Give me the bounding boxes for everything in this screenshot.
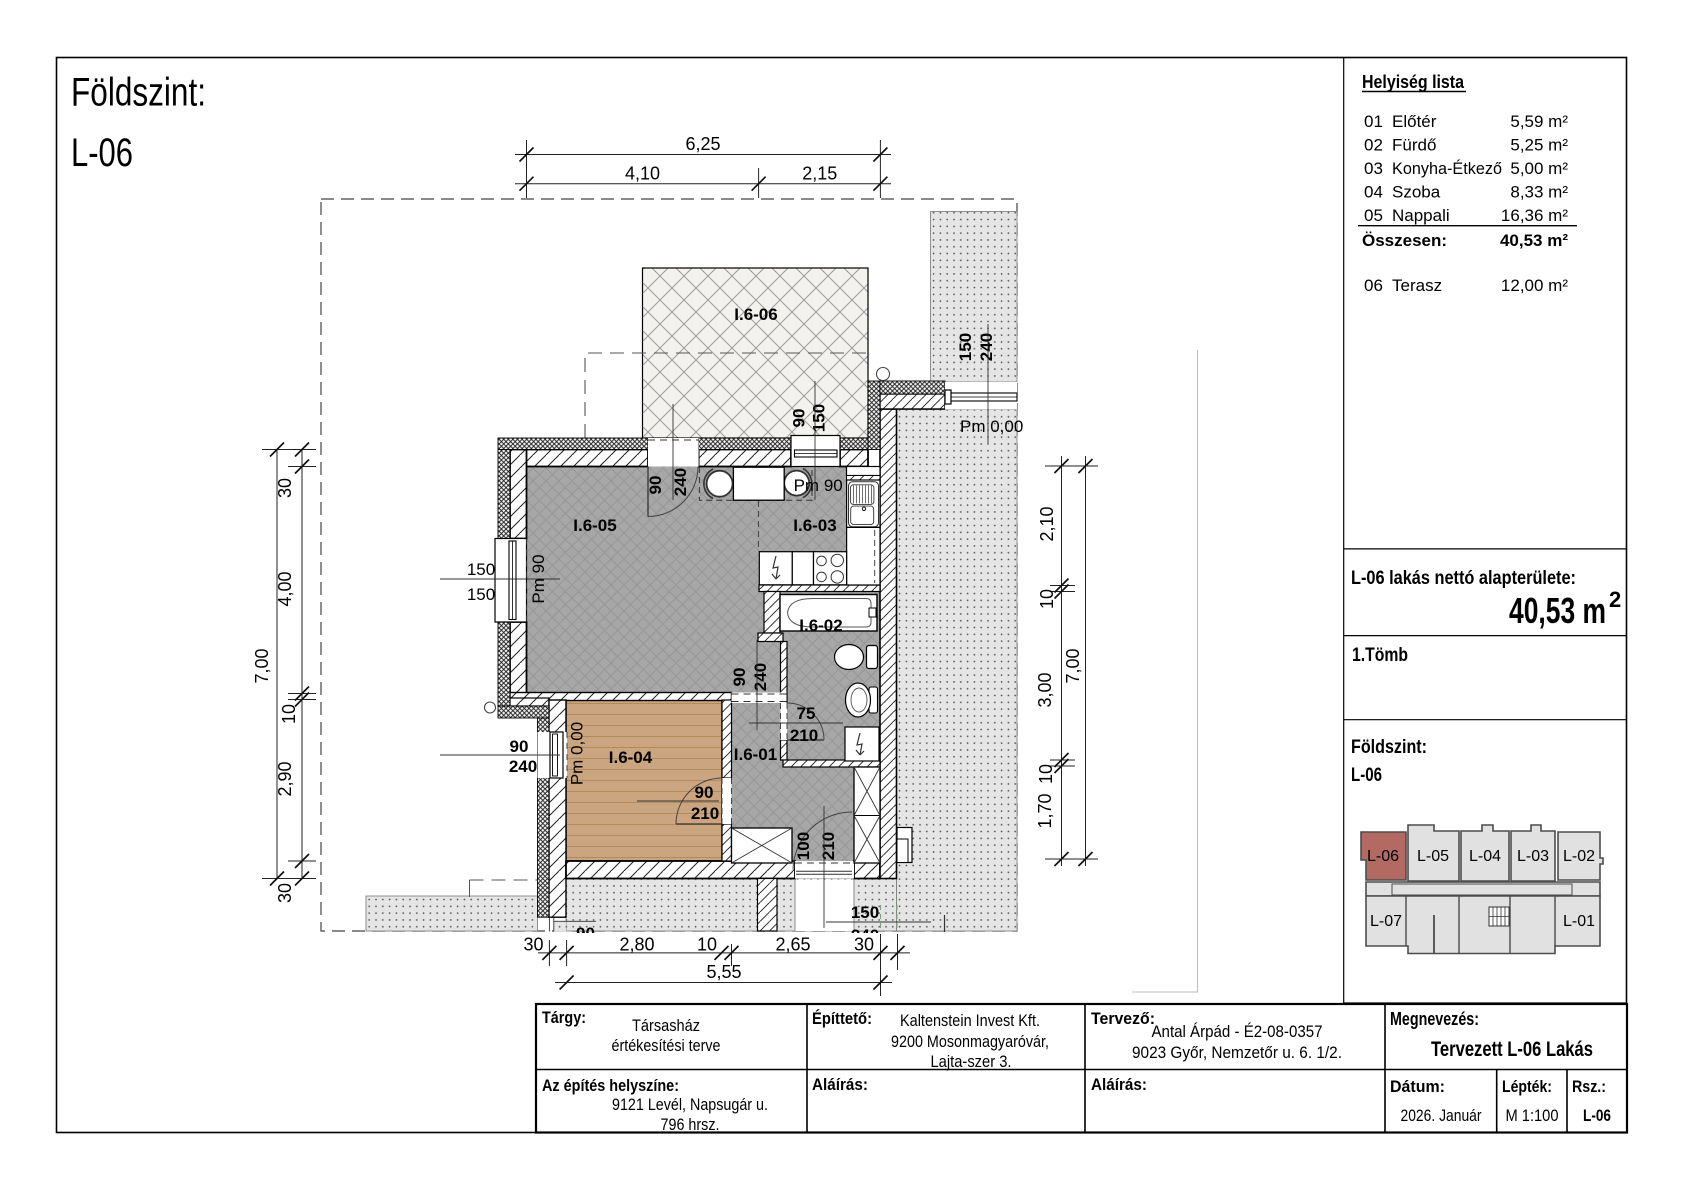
svg-text:5,59 m²: 5,59 m² [1510, 112, 1568, 131]
svg-text:Előtér: Előtér [1392, 112, 1437, 131]
svg-text:Pm 90: Pm 90 [794, 476, 843, 495]
svg-text:75: 75 [797, 704, 816, 723]
svg-text:90: 90 [510, 737, 529, 756]
svg-text:40,53 m²: 40,53 m² [1500, 231, 1568, 250]
svg-text:L-01: L-01 [1563, 913, 1595, 930]
svg-text:Antal Árpád - É2-08-0357: Antal Árpád - É2-08-0357 [1152, 1022, 1323, 1041]
svg-text:1.Tömb: 1.Tömb [1352, 645, 1408, 666]
svg-text:értékesítési terve: értékesítési terve [612, 1036, 721, 1055]
svg-text:Pm 90: Pm 90 [529, 554, 548, 603]
svg-text:Tervezett L-06 Lakás: Tervezett L-06 Lakás [1431, 1038, 1593, 1061]
svg-text:1,70: 1,70 [1035, 793, 1055, 828]
svg-text:2: 2 [1609, 587, 1621, 612]
svg-text:240: 240 [671, 468, 690, 496]
svg-text:12,00 m²: 12,00 m² [1501, 276, 1568, 295]
svg-text:Aláírás:: Aláírás: [1091, 1075, 1147, 1094]
svg-text:Megnevezés:: Megnevezés: [1390, 1009, 1479, 1029]
svg-text:Összesen:: Összesen: [1362, 231, 1447, 250]
svg-text:M 1:100: M 1:100 [1506, 1106, 1559, 1125]
svg-text:2026. Január: 2026. Január [1401, 1106, 1482, 1125]
svg-text:L-06 lakás nettó alapterülete:: L-06 lakás nettó alapterülete: [1351, 568, 1576, 589]
svg-text:8,33 m²: 8,33 m² [1510, 183, 1568, 202]
svg-text:Tárgy:: Tárgy: [542, 1008, 586, 1027]
svg-text:Helyiség lista: Helyiség lista [1362, 72, 1465, 92]
svg-text:Rsz.:: Rsz.: [1572, 1077, 1606, 1096]
svg-text:Lépték:: Lépték: [1502, 1077, 1552, 1096]
svg-text:03: 03 [1364, 159, 1383, 178]
svg-text:30: 30 [275, 883, 295, 903]
svg-text:Pm 0,00: Pm 0,00 [960, 417, 1023, 436]
svg-text:01: 01 [1364, 112, 1383, 131]
svg-text:Pm 0,00: Pm 0,00 [568, 722, 587, 785]
svg-text:240: 240 [509, 757, 537, 776]
svg-text:5,00 m²: 5,00 m² [1510, 159, 1568, 178]
svg-text:Terasz: Terasz [1392, 276, 1442, 295]
svg-text:2,10: 2,10 [1037, 506, 1057, 541]
svg-text:9200 Mosonmagyaróvár,: 9200 Mosonmagyaróvár, [891, 1032, 1049, 1051]
svg-text:Lajta-szer 3.: Lajta-szer 3. [931, 1052, 1012, 1071]
svg-text:150: 150 [956, 333, 975, 361]
svg-text:4,10: 4,10 [625, 164, 660, 184]
svg-text:Fürdő: Fürdő [1392, 136, 1436, 155]
svg-text:10: 10 [1036, 764, 1056, 784]
svg-text:2,80: 2,80 [619, 935, 654, 955]
svg-text:2,90: 2,90 [275, 761, 295, 796]
svg-text:6,25: 6,25 [685, 134, 720, 154]
svg-text:150: 150 [467, 560, 495, 579]
svg-text:Nappali: Nappali [1392, 206, 1450, 225]
svg-text:02: 02 [1364, 136, 1383, 155]
svg-text:Konyha-Étkező: Konyha-Étkező [1392, 159, 1502, 178]
svg-text:90: 90 [576, 924, 595, 943]
svg-text:L-06: L-06 [71, 131, 133, 175]
svg-text:05: 05 [1364, 206, 1383, 225]
svg-text:3,00: 3,00 [1035, 672, 1055, 707]
svg-text:9121 Levél, Napsugár u.: 9121 Levél, Napsugár u. [612, 1095, 768, 1114]
svg-text:L-02: L-02 [1563, 848, 1595, 865]
svg-text:90: 90 [695, 783, 714, 802]
svg-text:Az építés helyszíne:: Az építés helyszíne: [542, 1076, 679, 1095]
svg-text:06: 06 [1364, 276, 1383, 295]
svg-text:7,00: 7,00 [252, 648, 272, 683]
svg-text:150: 150 [851, 903, 879, 922]
svg-text:Földszint:: Földszint: [1351, 737, 1427, 758]
svg-text:2,65: 2,65 [775, 935, 810, 955]
svg-text:30: 30 [523, 935, 543, 955]
svg-text:L-06: L-06 [1367, 848, 1399, 865]
svg-text:I.6-02: I.6-02 [799, 616, 842, 635]
svg-text:7,00: 7,00 [1063, 648, 1083, 683]
svg-text:210: 210 [819, 832, 838, 860]
svg-text:I.6-05: I.6-05 [573, 516, 616, 535]
svg-text:Földszint:: Földszint: [71, 71, 206, 115]
svg-text:240: 240 [751, 663, 770, 691]
svg-text:90: 90 [790, 409, 809, 428]
svg-text:5,25 m²: 5,25 m² [1510, 136, 1568, 155]
svg-text:I.6-01: I.6-01 [734, 745, 777, 764]
svg-text:10: 10 [1037, 589, 1057, 609]
svg-text:30: 30 [275, 478, 295, 498]
svg-text:Építtető:: Építtető: [812, 1009, 872, 1028]
svg-text:4,00: 4,00 [275, 571, 295, 606]
svg-text:Aláírás:: Aláírás: [812, 1075, 868, 1094]
svg-text:90: 90 [646, 476, 665, 495]
svg-text:10: 10 [697, 935, 717, 955]
svg-text:16,36 m²: 16,36 m² [1501, 206, 1568, 225]
svg-text:Kaltenstein Invest Kft.: Kaltenstein Invest Kft. [900, 1011, 1040, 1030]
svg-text:210: 210 [691, 804, 719, 823]
svg-text:10: 10 [279, 704, 299, 724]
svg-text:30: 30 [854, 935, 874, 955]
svg-text:40,53 m: 40,53 m [1509, 590, 1606, 631]
svg-text:2,15: 2,15 [802, 164, 837, 184]
svg-text:100: 100 [794, 832, 813, 860]
svg-text:240: 240 [977, 333, 996, 361]
svg-text:I.6-03: I.6-03 [793, 516, 836, 535]
svg-text:9023 Győr, Nemzetőr u. 6. 1/2.: 9023 Győr, Nemzetőr u. 6. 1/2. [1132, 1043, 1342, 1062]
svg-text:150: 150 [467, 585, 495, 604]
svg-text:I.6-04: I.6-04 [609, 748, 653, 767]
svg-text:L-03: L-03 [1517, 848, 1549, 865]
svg-text:04: 04 [1364, 183, 1383, 202]
svg-text:Dátum:: Dátum: [1390, 1077, 1445, 1096]
svg-text:L-07: L-07 [1370, 913, 1402, 930]
svg-text:Társasház: Társasház [632, 1016, 700, 1035]
svg-text:L-05: L-05 [1417, 848, 1449, 865]
svg-text:210: 210 [790, 726, 818, 745]
svg-text:5,55: 5,55 [706, 962, 741, 982]
svg-text:I.6-06: I.6-06 [734, 305, 777, 324]
svg-text:L-06: L-06 [1351, 765, 1382, 786]
svg-text:L-04: L-04 [1469, 848, 1501, 865]
svg-text:150: 150 [810, 404, 829, 432]
svg-text:Tervező:: Tervező: [1091, 1009, 1155, 1028]
svg-text:L-06: L-06 [1583, 1106, 1611, 1125]
svg-text:Szoba: Szoba [1392, 183, 1441, 202]
svg-text:90: 90 [730, 668, 749, 687]
svg-text:796 hrsz.: 796 hrsz. [661, 1115, 720, 1134]
